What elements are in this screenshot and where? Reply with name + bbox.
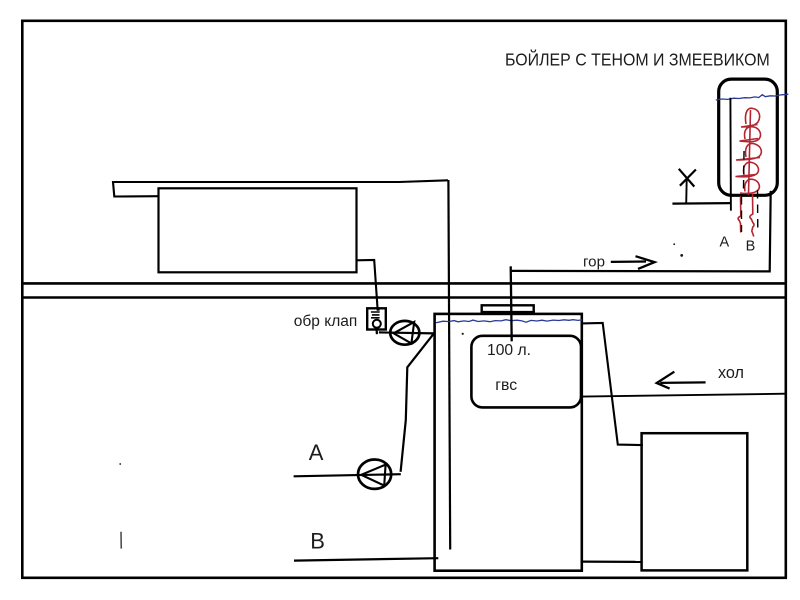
svg-text:В: В (746, 239, 756, 255)
svg-text:гвс: гвс (495, 377, 517, 394)
svg-text:БОЙЛЕР С ТЕНОМ И ЗМЕЕВИКОМ: БОЙЛЕР С ТЕНОМ И ЗМЕЕВИКОМ (505, 49, 770, 70)
svg-text:А: А (309, 440, 324, 465)
svg-text:100 л.: 100 л. (487, 342, 531, 359)
svg-text:А: А (720, 235, 730, 251)
svg-text:В: В (310, 528, 325, 553)
svg-text:хол: хол (718, 363, 744, 382)
svg-text:обр клап: обр клап (294, 313, 358, 330)
svg-text:гор: гор (583, 253, 605, 270)
